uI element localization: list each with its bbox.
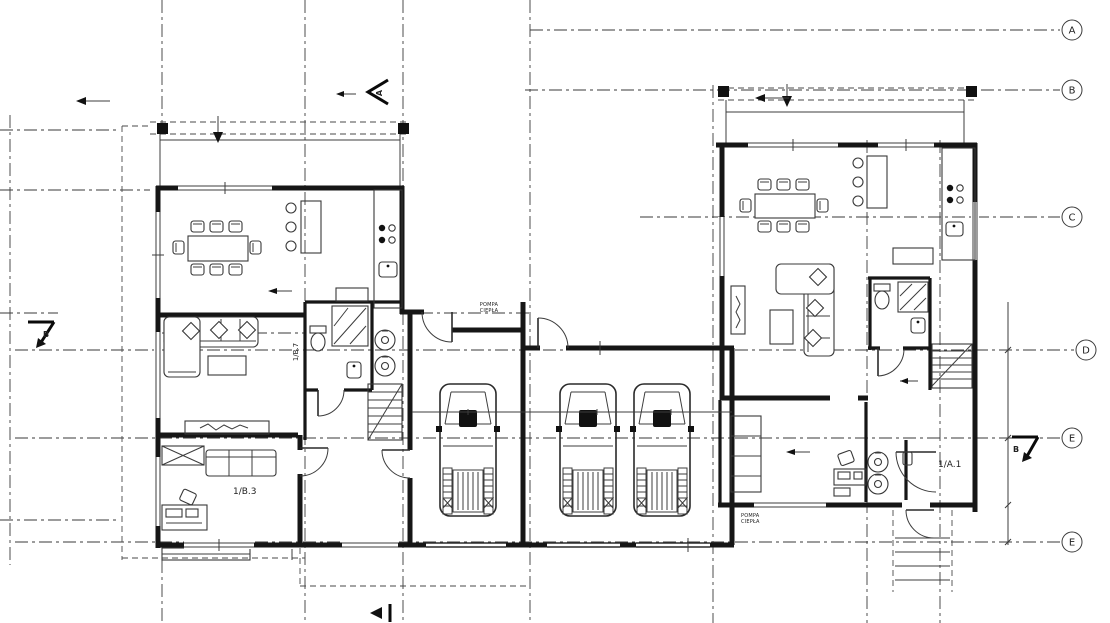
room-label-1b7: 1/B.7 xyxy=(292,343,300,361)
floor-plan-canvas: A B C D E E xyxy=(0,0,1110,623)
windows xyxy=(152,139,979,551)
svg-text:CIEPŁA: CIEPŁA xyxy=(480,308,499,314)
kitchen-sink xyxy=(379,262,397,277)
coffee-table xyxy=(770,310,793,344)
stairs xyxy=(368,384,402,440)
svg-text:B: B xyxy=(43,330,49,339)
pergola-column xyxy=(157,123,168,134)
tv-stand xyxy=(731,286,745,334)
section-marker-b-left: B xyxy=(28,322,54,348)
kitchen-counter xyxy=(942,148,975,260)
washer xyxy=(868,452,888,472)
grid-label-d: D xyxy=(1082,346,1090,357)
car xyxy=(630,384,694,516)
dining-table xyxy=(755,194,815,218)
toilet xyxy=(311,333,325,351)
room-label-1a1: 1/A.1 xyxy=(938,460,961,470)
room-labels: 1/B.3 1/B.7 1/A.1 xyxy=(233,343,961,497)
svg-text:B: B xyxy=(1013,445,1019,454)
section-marker-a-bottom xyxy=(370,604,390,622)
grid-label-b: B xyxy=(1069,86,1076,97)
section-marker-a-top: A xyxy=(336,80,388,104)
stairs xyxy=(932,344,972,388)
grid-label-c: C xyxy=(1069,213,1076,224)
sink xyxy=(911,318,925,333)
desk-chair xyxy=(179,489,197,506)
dryer xyxy=(375,356,395,376)
grid-label-e2: E xyxy=(1069,538,1075,549)
sink xyxy=(347,362,361,378)
grid-label-a: A xyxy=(1069,26,1076,37)
tv-stand xyxy=(185,421,269,434)
unit-a-furniture xyxy=(731,148,975,496)
kitchen-sink xyxy=(946,222,963,236)
kitchen-counter xyxy=(374,190,402,308)
dining-table xyxy=(188,236,248,261)
washer xyxy=(375,330,395,350)
couch xyxy=(206,450,276,476)
section-marker-b-right: B xyxy=(1012,437,1038,462)
grid-bubbles: A B C D E E xyxy=(1062,20,1096,552)
car xyxy=(556,384,620,516)
toilet xyxy=(875,291,889,309)
svg-text:A: A xyxy=(375,89,384,96)
coffee-table xyxy=(208,356,246,375)
pergola-column xyxy=(398,123,409,134)
wardrobe xyxy=(731,416,761,492)
unit-b-furniture xyxy=(162,190,402,530)
svg-text:CIEPŁA: CIEPŁA xyxy=(741,519,760,525)
pergola-column xyxy=(966,86,977,97)
desk-chair xyxy=(837,450,854,466)
dryer xyxy=(868,474,888,494)
room-label-1b3: 1/B.3 xyxy=(233,487,257,497)
garage-cars xyxy=(412,384,732,516)
grid-label-e1: E xyxy=(1069,434,1075,445)
car xyxy=(436,384,500,516)
floor-plan-page: A B C D E E xyxy=(0,0,1110,623)
pergola-column xyxy=(718,86,729,97)
